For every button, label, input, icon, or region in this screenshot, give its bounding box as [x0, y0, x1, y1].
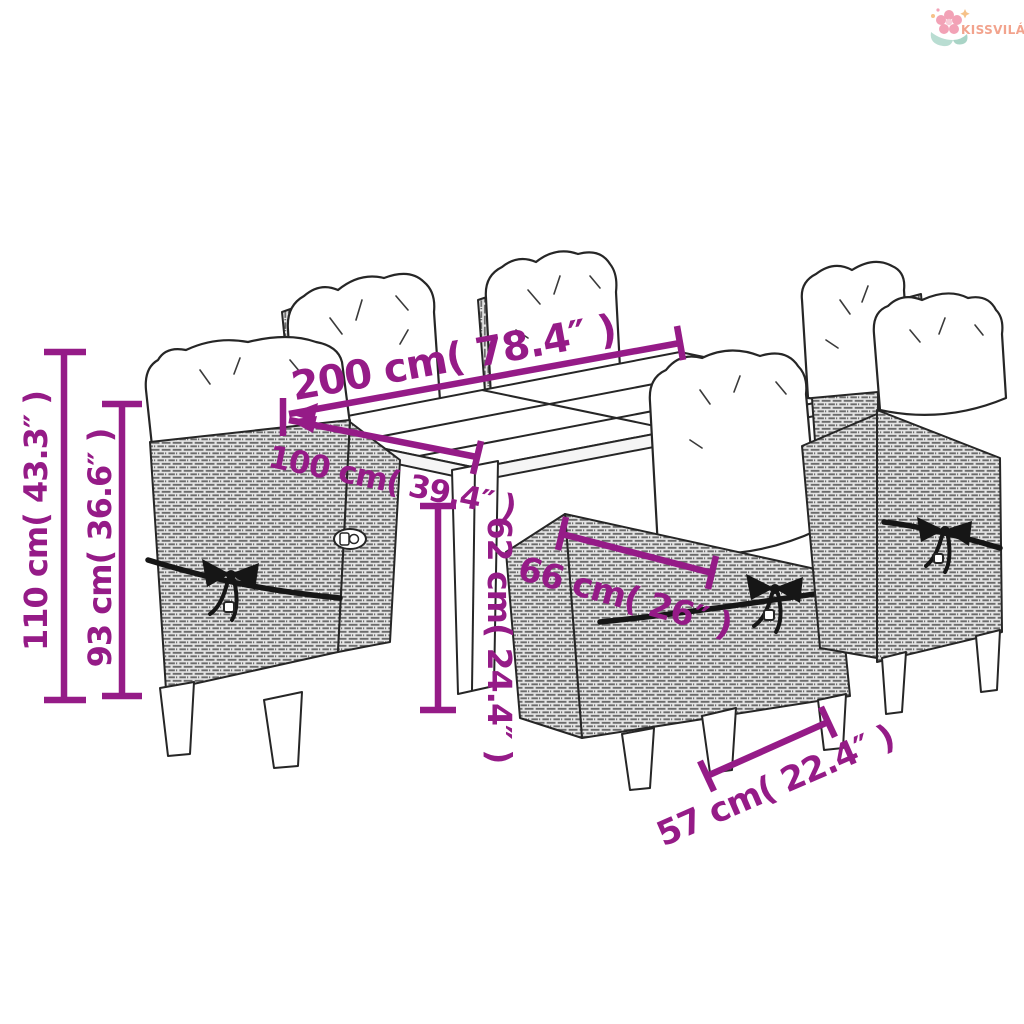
dimension-chair-width: 57 cm( 22.4″ ) [651, 707, 900, 855]
brand-name: KISSVILÁG [961, 22, 1024, 37]
chair-leg [264, 692, 302, 768]
brand-logo: KISSVILÁG [931, 8, 1024, 46]
product-dimension-diagram: 200 cm( 78.4″ ) 100 cm( 39.4″ ) 62 cm( 2… [0, 0, 1024, 1024]
chair-backrest [877, 410, 1002, 662]
dimension-label-chair-width: 57 cm( 22.4″ ) [651, 717, 900, 855]
strap-button [764, 610, 774, 620]
chair-cushion [874, 293, 1006, 414]
dimension-backrest-height: 93 cm( 36.6″ ) [81, 404, 142, 696]
dimension-chair-height: 110 cm( 43.3″ ) [17, 352, 86, 700]
product-dimension-image: 200 cm( 78.4″ ) 100 cm( 39.4″ ) 62 cm( 2… [0, 0, 1024, 1024]
dimension-label-table-height: 62 cm( 24.4″ ) [480, 517, 519, 764]
dimension-label-chair-height: 110 cm( 43.3″ ) [17, 391, 55, 651]
chair-leg [882, 652, 906, 714]
dimension-label-backrest-height: 93 cm( 36.6″ ) [81, 429, 119, 668]
chair-leg [976, 630, 1000, 692]
chair-cushion [650, 350, 818, 554]
chair-leg [160, 682, 194, 756]
strap-button [934, 554, 943, 563]
strap-button [224, 602, 234, 612]
chair-leg [622, 728, 654, 790]
